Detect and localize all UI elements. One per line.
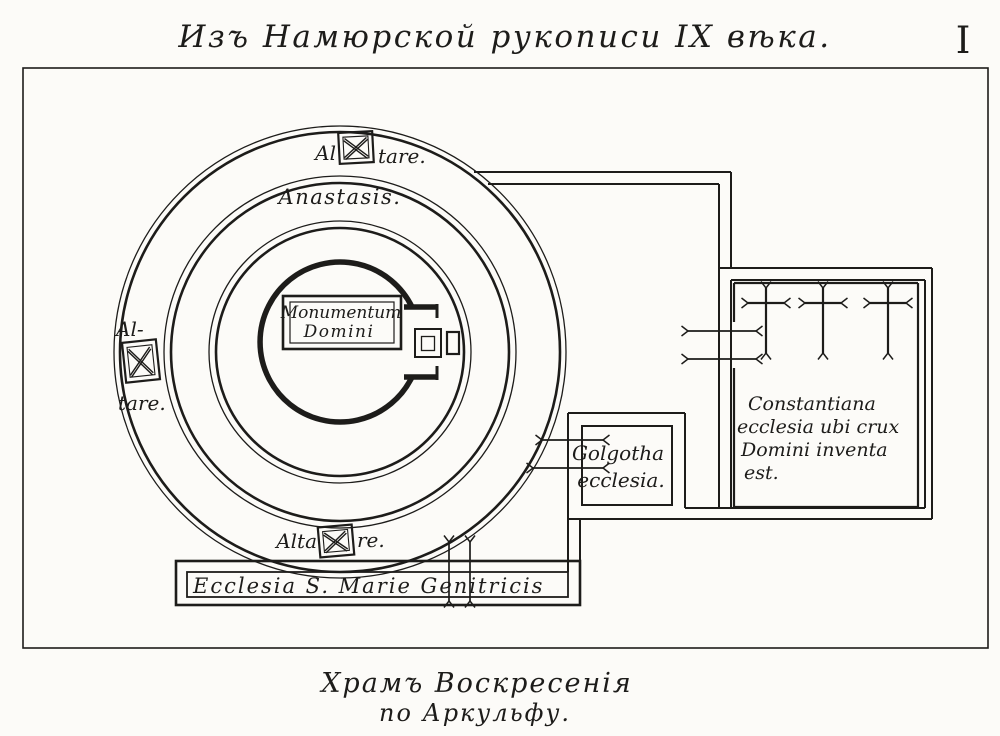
forked-cross-icon <box>748 288 784 353</box>
altar-north-label-right: tare. <box>378 144 426 168</box>
altar-south-label-left: Alta <box>274 529 317 553</box>
monumentum-label-line1: Monumentum <box>280 303 402 323</box>
constantiana-label-line2: ecclesia ubi crux <box>737 416 900 438</box>
altar-south: Alta re. <box>274 525 385 558</box>
forked-cross-icon <box>805 288 841 353</box>
caption-line1: Храмъ Воскресенія <box>319 668 633 699</box>
altar-north-label-left: Al <box>313 141 336 165</box>
plate-title: Изъ Намюрской рукописи IX вѣка. <box>177 19 831 55</box>
forked-cross-icon <box>870 288 906 353</box>
altar-crossed-square-icon <box>338 131 374 164</box>
anastasis-label: Anastasis. <box>277 185 402 209</box>
altar-west-label-top: Al- <box>114 317 144 341</box>
golgotha-label-line2: ecclesia. <box>577 468 664 492</box>
aedicule-entry-square <box>415 329 441 357</box>
altar-crossed-square-icon <box>318 525 354 558</box>
aedicule-door-block <box>447 332 459 354</box>
monumentum-domini-box: Monumentum Domini <box>280 296 402 349</box>
st-marie-label: Ecclesia S. Marie Genitricis <box>192 574 544 598</box>
constantiana-label-line3: Domini inventa <box>740 439 888 461</box>
constantiana-label-line1: Constantiana <box>748 393 876 415</box>
altar-west: Al- tare. <box>114 317 166 415</box>
atrium-walls <box>474 172 932 572</box>
golgotha-label-line1: Golgotha <box>572 441 664 465</box>
altar-crossed-square-icon <box>122 339 160 382</box>
altar-south-label-right: re. <box>357 528 385 552</box>
engraved-plan: Изъ Намюрской рукописи IX вѣка. I Anasta… <box>0 0 1000 736</box>
altar-west-label-bottom: tare. <box>118 391 166 415</box>
constantiana-chapel: Constantiana ecclesia ubi crux Domini in… <box>734 283 918 507</box>
golgotha-chapel: Golgotha ecclesia. <box>568 413 685 519</box>
monumentum-label-line2: Domini <box>303 322 375 342</box>
caption-line2: по Аркульфу. <box>379 699 571 727</box>
manuscript-plate: Изъ Намюрской рукописи IX вѣка. I Anasta… <box>0 0 1000 736</box>
constantiana-label-line4: est. <box>744 462 779 484</box>
plate-numeral: I <box>956 19 971 62</box>
